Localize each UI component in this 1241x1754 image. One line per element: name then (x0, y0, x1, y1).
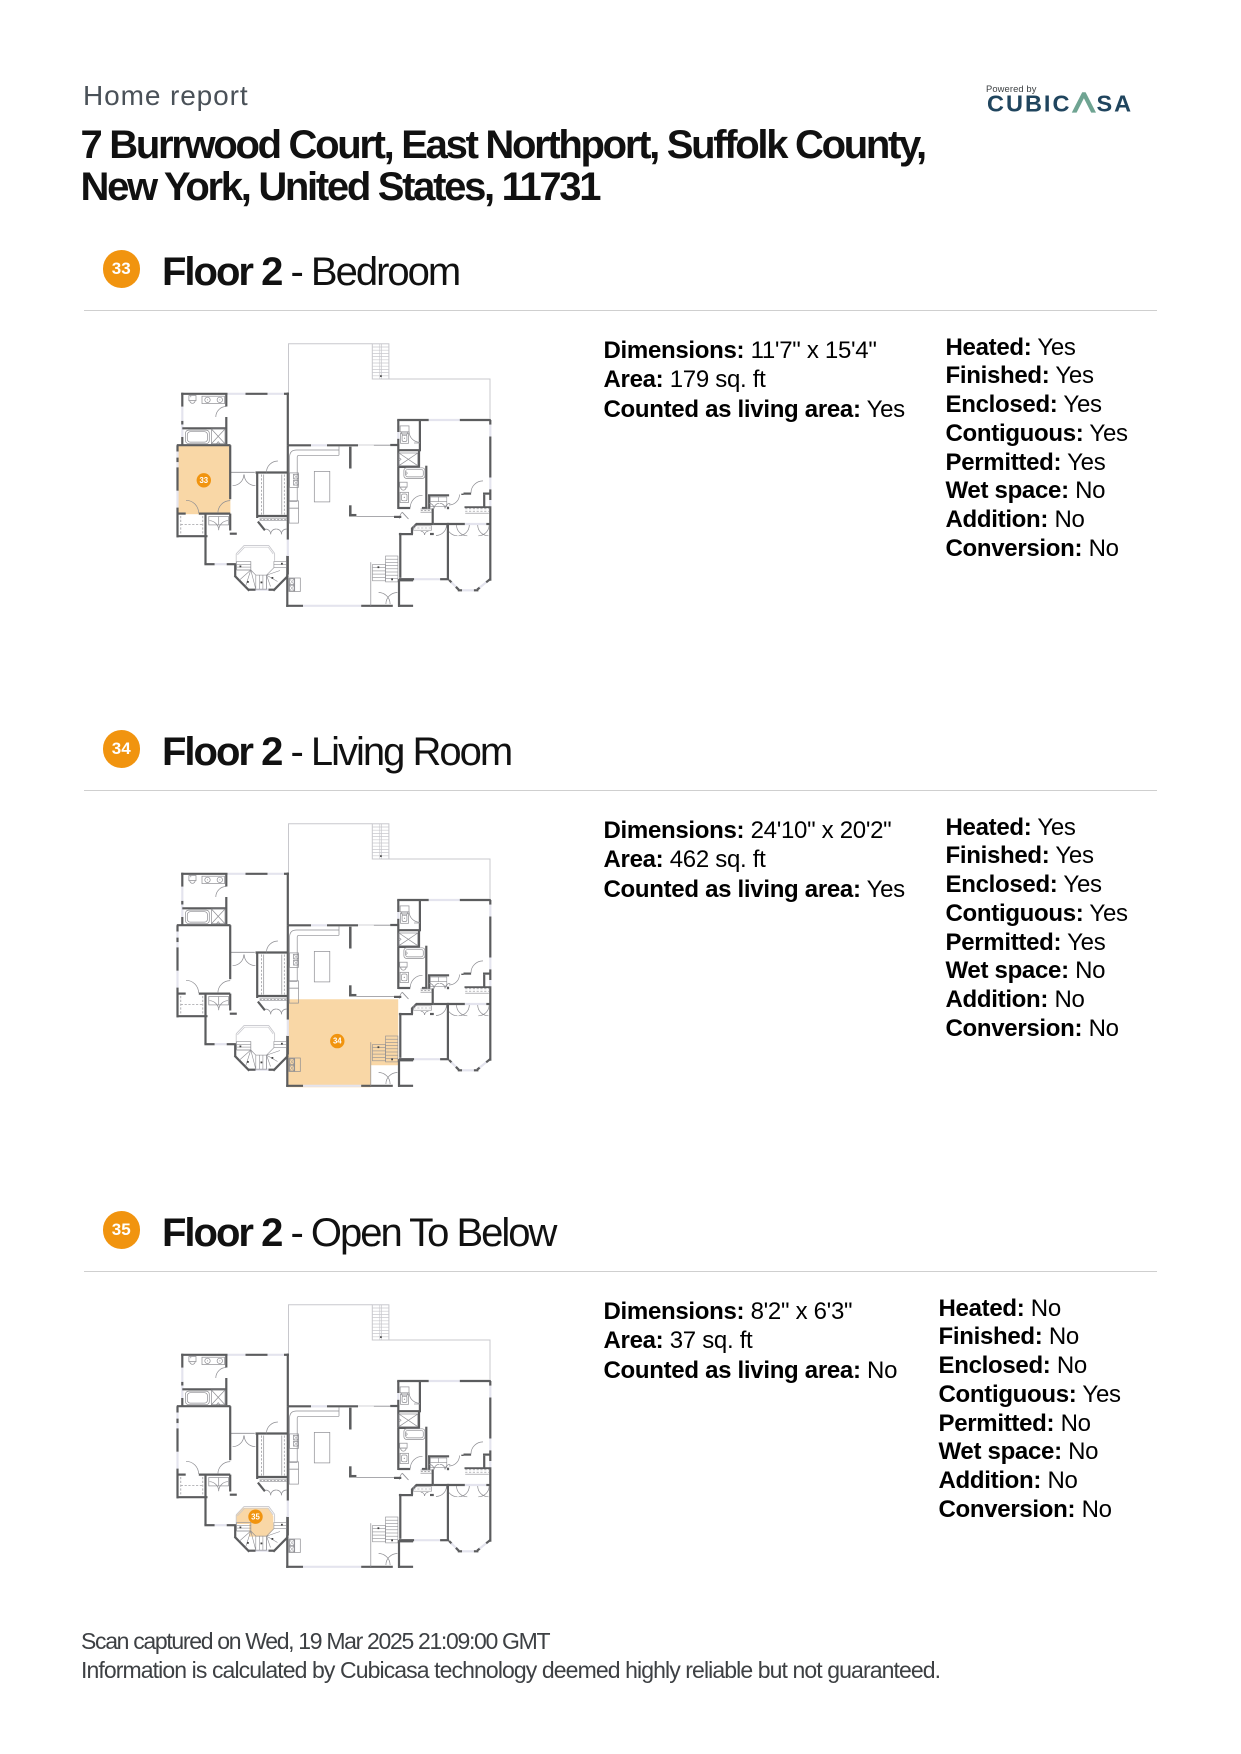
svg-text:SA: SA (1097, 91, 1134, 117)
svg-text:35: 35 (251, 1512, 260, 1521)
svg-text:33: 33 (199, 476, 208, 485)
svg-text:34: 34 (333, 1037, 342, 1046)
svg-text:CUBIC: CUBIC (987, 91, 1071, 117)
